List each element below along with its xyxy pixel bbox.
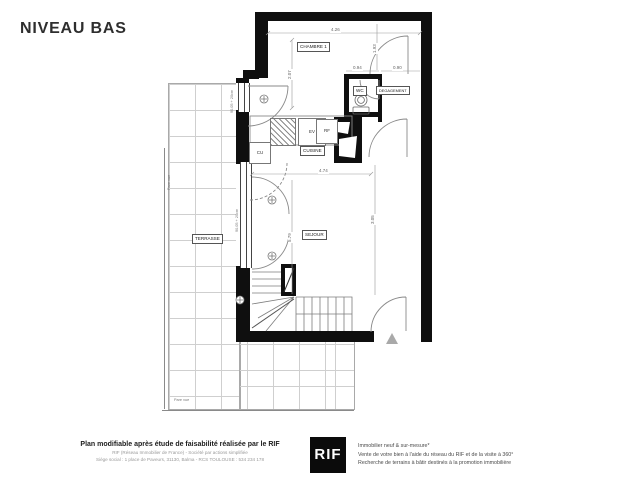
dim-sejour-width: 4.74 [318,169,329,174]
pare-vue-label-bottom: Pare vue [174,399,189,403]
duct-shaft-infill [337,122,357,158]
footer-address-line: Siège social : 1 place de Paveurs, 31130… [30,457,330,464]
door-arc-sejour-terrace-2 [252,232,289,269]
room-label-degagement: DEGAGEMENT [376,86,410,95]
footer-left-block: Plan modifiable après étude de faisabili… [30,441,330,464]
floor-plan-page: { "page": { "title": "NIVEAU BAS" }, "pl… [0,0,640,480]
dim-top-width: 4.26 [330,28,341,33]
footer-headline: Plan modifiable après étude de faisabili… [30,441,330,450]
fridge-unit: RF [316,119,338,144]
rif-logo: RIF [310,437,346,473]
dim-degagement-width: 0.90 [392,66,403,71]
dim-chambre-height: 2.07 [288,69,293,80]
dim-chambre-right: 1.93 [373,43,378,54]
staircase [252,268,352,331]
room-label-sejour: SEJOUR [302,230,327,240]
cooker-unit: CU [249,142,271,164]
footer-company-line: RIF (Réseau Immobilier de France) - Soci… [30,450,330,457]
room-label-chambre1: CHAMBRE 1 [297,42,330,52]
dishwasher-hatch [270,118,296,146]
door-arc-entrance [371,297,406,332]
window-note-chambre: 90.05 + 20cm [231,90,235,113]
footer-service-2: Vente de votre bien à l'aide du réseau d… [358,451,588,460]
pare-vue-label-side: Pare vue [168,175,172,190]
door-arc-kitchen-dashed [250,163,287,200]
door-arc-sejour-terrace-1 [252,177,289,214]
dim-sejour-height: 5.79 [288,232,293,243]
window-note-sejour: 90.05 + 20cm [236,209,240,232]
room-label-terrasse: TERRASSE [192,234,223,244]
room-label-cuisine: CUISINE [300,146,325,156]
footer-service-1: Immobilier neuf & sur-mesure* [358,442,588,451]
room-label-wc: WC [353,86,367,96]
toilet-icon [353,94,369,114]
plan-linework [0,0,640,480]
dim-wc-width: 0.94 [352,66,363,71]
footer-service-3: Recherche de terrains à bâtir destinés à… [358,459,588,468]
dim-sejour-right: 3.05 [371,214,376,225]
door-arc-degagement-sejour [369,119,407,157]
footer-right-block: Immobilier neuf & sur-mesure* Vente de v… [358,442,588,468]
entrance-arrow-icon [386,333,398,344]
